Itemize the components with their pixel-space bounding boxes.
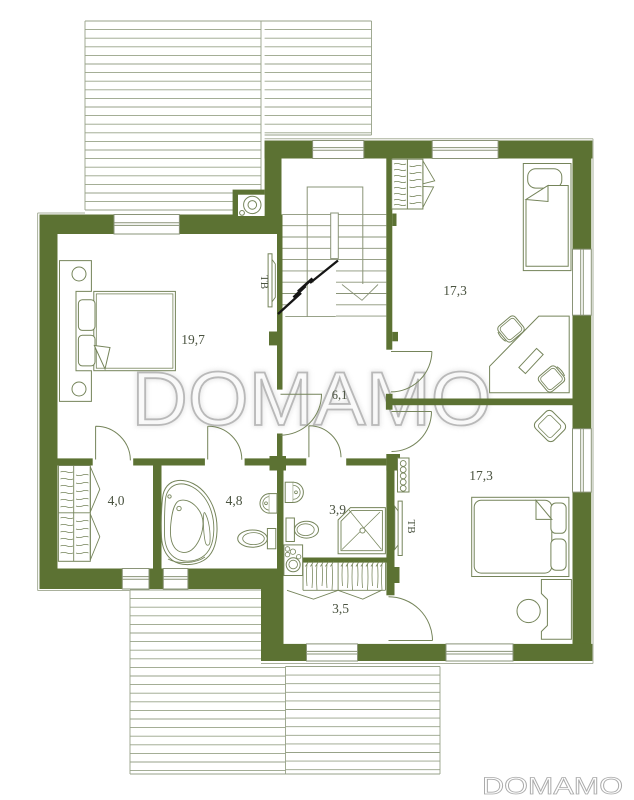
svg-text:17,3: 17,3: [469, 468, 493, 483]
svg-text:3,9: 3,9: [329, 502, 346, 517]
svg-text:DOMAMO: DOMAMO: [482, 773, 623, 800]
svg-text:ТВ: ТВ: [258, 275, 270, 289]
svg-text:4,8: 4,8: [226, 493, 243, 508]
svg-text:6,1: 6,1: [332, 388, 348, 402]
svg-text:ТВ: ТВ: [405, 519, 417, 533]
svg-text:3,5: 3,5: [332, 601, 349, 616]
svg-text:19,7: 19,7: [181, 332, 205, 347]
svg-text:4,0: 4,0: [108, 493, 125, 508]
svg-text:17,3: 17,3: [443, 283, 467, 298]
